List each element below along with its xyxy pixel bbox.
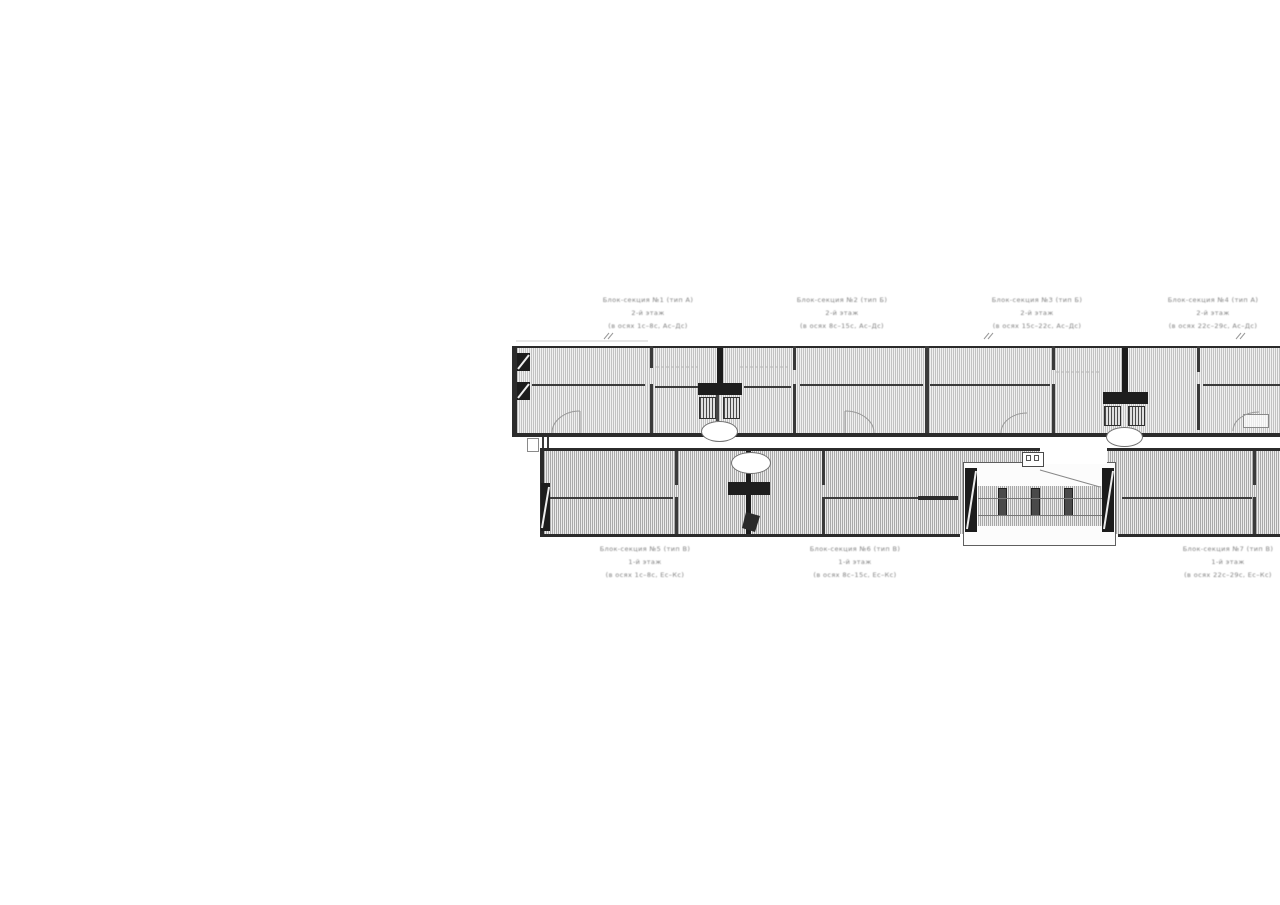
entry-step-box bbox=[527, 438, 539, 452]
wing-bottom-outer-wall-bottom bbox=[540, 534, 960, 537]
interior-wall bbox=[1203, 384, 1280, 386]
partition-wall bbox=[822, 497, 825, 534]
partition-wall bbox=[1052, 384, 1055, 433]
stair-curve bbox=[731, 452, 771, 474]
interior-wall bbox=[1122, 497, 1252, 499]
wall-pier bbox=[965, 468, 977, 532]
hall-guide-line bbox=[978, 498, 1102, 499]
interior-wall bbox=[918, 496, 958, 500]
connector-wall bbox=[547, 437, 549, 448]
stair-curve bbox=[1106, 427, 1143, 447]
interior-wall bbox=[532, 384, 645, 386]
wall-pier bbox=[541, 483, 550, 531]
wing-top-outer-wall-top bbox=[512, 346, 1280, 348]
stair-treads bbox=[699, 397, 716, 419]
label-line-3: (в осях 22с–29с, Ес–Кс) bbox=[1163, 569, 1280, 582]
hall-guide-line bbox=[978, 515, 1102, 516]
stair-landing bbox=[1103, 392, 1148, 404]
partition-wall bbox=[793, 384, 796, 433]
interior-wall bbox=[800, 384, 923, 386]
interior-wall bbox=[550, 497, 673, 499]
wing-top-outer-wall-bottom bbox=[512, 433, 1280, 437]
wall-pier bbox=[517, 382, 530, 400]
wing-bottom-outer-wall-top bbox=[540, 448, 1040, 451]
label-line-3: (в осях 8с–15с, Ес–Кс) bbox=[790, 569, 920, 582]
label-line-2: 2-й этаж bbox=[583, 307, 713, 320]
stair-landing bbox=[698, 383, 742, 395]
stair-landing bbox=[728, 482, 770, 495]
partition-wall bbox=[650, 384, 653, 433]
partition-wall bbox=[822, 451, 825, 485]
section-label-top-1: Блок-секция №1 (тип А) 2-й этаж (в осях … bbox=[583, 294, 713, 333]
label-line-3: (в осях 22с–29с, Ас–Дс) bbox=[1148, 320, 1278, 333]
hall-column bbox=[1031, 488, 1040, 516]
label-line-3: (в осях 15с–22с, Ас–Дс) bbox=[972, 320, 1102, 333]
partition-wall bbox=[925, 346, 929, 433]
stair-treads bbox=[1128, 406, 1145, 426]
wall-pier bbox=[517, 353, 530, 371]
label-line-3: (в осях 1с–8с, Ес–Кс) bbox=[580, 569, 710, 582]
partition-wall bbox=[1253, 497, 1256, 534]
label-line-3: (в осях 8с–15с, Ас–Дс) bbox=[777, 320, 907, 333]
axis-tick-marks bbox=[604, 333, 1245, 339]
partition-wall bbox=[650, 346, 653, 368]
stair-rail bbox=[716, 395, 719, 421]
label-line-2: 1-й этаж bbox=[580, 556, 710, 569]
stair-treads bbox=[1104, 406, 1121, 426]
wing-top-room-fill bbox=[517, 348, 1280, 433]
stair-flight-wall bbox=[1122, 348, 1128, 394]
partition-wall bbox=[675, 497, 678, 534]
partition-wall bbox=[1052, 346, 1055, 370]
stair-treads bbox=[723, 397, 740, 419]
wing-bottom-outer-wall-bottom bbox=[1118, 534, 1280, 537]
label-line-1: Блок-секция №5 (тип В) bbox=[580, 543, 710, 556]
section-label-bottom-3: Блок-секция №7 (тип В) 1-й этаж (в осях … bbox=[1163, 543, 1280, 582]
vestibule-fixture bbox=[1034, 455, 1039, 461]
partition-wall bbox=[675, 451, 678, 485]
label-line-2: 2-й этаж bbox=[972, 307, 1102, 320]
label-line-2: 1-й этаж bbox=[790, 556, 920, 569]
interior-wall bbox=[744, 386, 791, 388]
label-line-1: Блок-секция №3 (тип Б) bbox=[972, 294, 1102, 307]
partition-wall bbox=[793, 346, 796, 370]
partition-wall bbox=[1197, 384, 1200, 430]
floor-plan-canvas: Блок-секция №1 (тип А) 2-й этаж (в осях … bbox=[0, 0, 1280, 905]
partition-wall bbox=[1197, 346, 1200, 372]
room-tag-box bbox=[1243, 414, 1269, 428]
label-line-1: Блок-секция №2 (тип Б) bbox=[777, 294, 907, 307]
partition-wall bbox=[1253, 451, 1256, 485]
label-line-2: 2-й этаж bbox=[777, 307, 907, 320]
hall-column bbox=[1064, 488, 1073, 516]
section-label-bottom-2: Блок-секция №6 (тип В) 1-й этаж (в осях … bbox=[790, 543, 920, 582]
hall-column bbox=[998, 488, 1007, 516]
label-line-2: 2-й этаж bbox=[1148, 307, 1278, 320]
section-label-top-3: Блок-секция №3 (тип Б) 2-й этаж (в осях … bbox=[972, 294, 1102, 333]
label-line-1: Блок-секция №4 (тип А) bbox=[1148, 294, 1278, 307]
wing-bottom-room-fill bbox=[544, 451, 1280, 534]
wall-pier bbox=[1102, 468, 1114, 532]
interior-wall bbox=[825, 497, 920, 499]
label-line-3: (в осях 1с–8с, Ас–Дс) bbox=[583, 320, 713, 333]
interior-wall bbox=[655, 386, 698, 388]
label-line-1: Блок-секция №7 (тип В) bbox=[1163, 543, 1280, 556]
stair-curve bbox=[701, 421, 738, 442]
label-line-2: 1-й этаж bbox=[1163, 556, 1280, 569]
interior-wall bbox=[930, 384, 1050, 386]
connector-wall bbox=[542, 437, 544, 448]
hall-floor-hatch bbox=[978, 486, 1102, 526]
section-label-top-4: Блок-секция №4 (тип А) 2-й этаж (в осях … bbox=[1148, 294, 1278, 333]
label-line-1: Блок-секция №6 (тип В) bbox=[790, 543, 920, 556]
section-label-bottom-1: Блок-секция №5 (тип В) 1-й этаж (в осях … bbox=[580, 543, 710, 582]
wall-opening bbox=[1040, 448, 1107, 464]
label-line-1: Блок-секция №1 (тип А) bbox=[583, 294, 713, 307]
vestibule-fixture bbox=[1026, 455, 1031, 461]
section-label-top-2: Блок-секция №2 (тип Б) 2-й этаж (в осях … bbox=[777, 294, 907, 333]
stair-flight-wall bbox=[717, 348, 723, 386]
